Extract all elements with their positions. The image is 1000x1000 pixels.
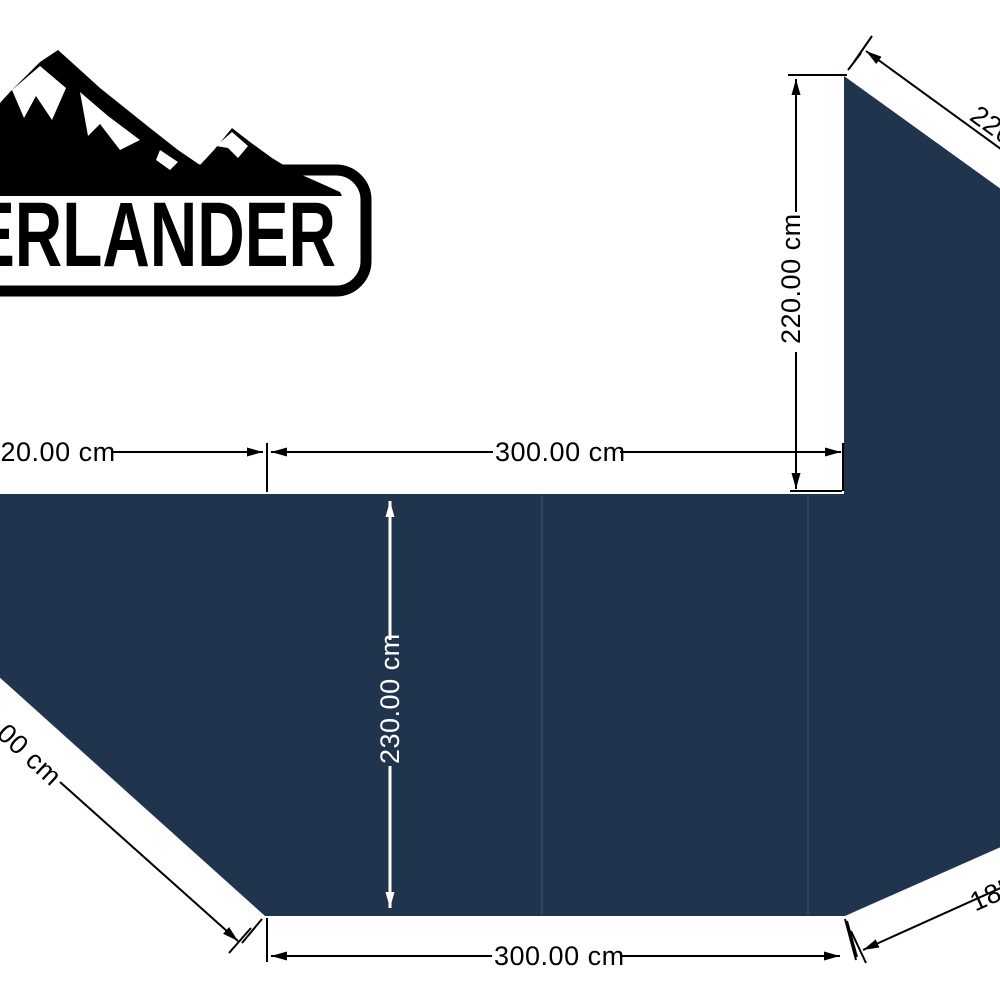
dimension-label-left-offset: 220.00 cm xyxy=(0,438,109,466)
awning-diagram-svg: OVERLANDER xyxy=(0,0,1000,1000)
logo-text: OVERLANDER xyxy=(0,184,336,286)
diagram-canvas: OVERLANDER 220.00 cm 300.00 cm 220.00 cm… xyxy=(0,0,1000,1000)
dimension-label-side-height: 220.00 cm xyxy=(777,220,805,344)
logo-mountains xyxy=(0,50,342,196)
brand-logo: OVERLANDER xyxy=(0,50,366,291)
dimension-label-bottom-span: 300.00 cm xyxy=(494,942,618,970)
dimension-label-top-span: 300.00 cm xyxy=(495,438,619,466)
dimension-label-depth: 230.00 cm xyxy=(376,640,404,764)
